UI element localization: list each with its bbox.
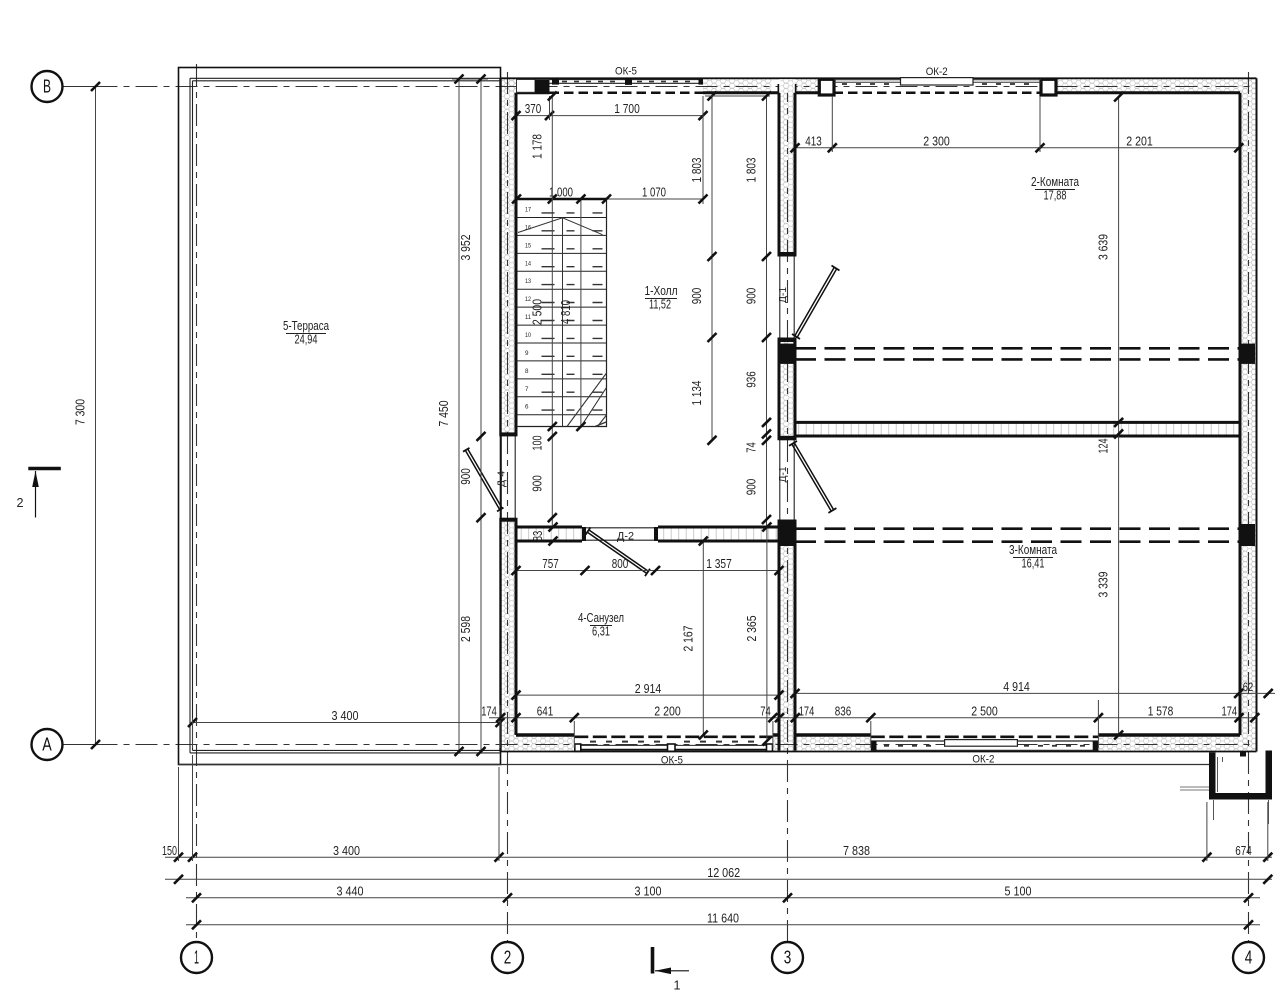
svg-text:Д-2: Д-2 <box>617 531 634 543</box>
svg-text:7: 7 <box>525 386 529 393</box>
svg-text:2: 2 <box>17 495 24 510</box>
svg-text:4 914: 4 914 <box>1003 679 1030 694</box>
svg-text:24,94: 24,94 <box>295 332 318 347</box>
svg-text:413: 413 <box>805 134 822 149</box>
svg-text:3 639: 3 639 <box>1096 234 1111 260</box>
svg-text:370: 370 <box>525 101 542 116</box>
svg-text:2: 2 <box>504 948 512 968</box>
svg-text:13: 13 <box>525 278 531 285</box>
svg-text:83: 83 <box>530 531 545 542</box>
svg-text:3 400: 3 400 <box>332 708 359 723</box>
svg-text:A: A <box>42 735 52 755</box>
svg-text:1 700: 1 700 <box>614 101 640 116</box>
svg-text:7 838: 7 838 <box>843 843 870 858</box>
svg-text:4 810: 4 810 <box>558 300 573 324</box>
svg-text:11 640: 11 640 <box>707 911 739 926</box>
svg-text:14: 14 <box>525 260 531 267</box>
svg-text:1: 1 <box>194 948 199 968</box>
svg-text:74: 74 <box>760 703 771 718</box>
svg-text:900: 900 <box>529 475 544 492</box>
svg-text:800: 800 <box>612 556 629 571</box>
svg-text:17,88: 17,88 <box>1044 188 1067 203</box>
svg-text:10: 10 <box>525 332 531 339</box>
svg-text:1 357: 1 357 <box>706 556 732 571</box>
svg-text:12 062: 12 062 <box>707 865 740 880</box>
svg-text:1: 1 <box>674 978 681 990</box>
svg-text:3 400: 3 400 <box>333 843 360 858</box>
svg-text:1 178: 1 178 <box>529 134 544 159</box>
svg-text:1 070: 1 070 <box>642 185 666 200</box>
svg-text:3 100: 3 100 <box>635 884 662 899</box>
svg-text:62: 62 <box>1243 680 1254 694</box>
svg-text:1 803: 1 803 <box>744 158 759 183</box>
svg-text:2 200: 2 200 <box>654 703 681 718</box>
svg-text:Д-1: Д-1 <box>777 466 789 482</box>
svg-text:1 578: 1 578 <box>1148 703 1174 718</box>
svg-text:2 365: 2 365 <box>744 616 759 642</box>
svg-text:100: 100 <box>529 436 544 451</box>
svg-text:900: 900 <box>689 288 704 305</box>
svg-text:5 100: 5 100 <box>1005 884 1032 899</box>
svg-text:Д-4: Д-4 <box>496 471 508 487</box>
svg-text:936: 936 <box>744 371 759 388</box>
svg-text:174: 174 <box>481 703 497 718</box>
svg-text:8: 8 <box>525 368 529 375</box>
svg-text:74: 74 <box>744 442 759 453</box>
svg-text:6: 6 <box>525 404 529 411</box>
svg-text:900: 900 <box>744 479 759 496</box>
svg-text:2 914: 2 914 <box>635 681 662 696</box>
svg-text:ОК-2: ОК-2 <box>926 66 948 78</box>
svg-text:124: 124 <box>1096 439 1111 454</box>
svg-text:757: 757 <box>542 556 559 571</box>
svg-text:11,52: 11,52 <box>649 297 671 312</box>
svg-text:174: 174 <box>799 703 815 718</box>
svg-text:B: B <box>43 77 51 97</box>
svg-text:3: 3 <box>784 948 792 968</box>
svg-text:641: 641 <box>537 703 554 718</box>
svg-text:2 201: 2 201 <box>1126 134 1153 149</box>
svg-text:3 339: 3 339 <box>1096 572 1111 598</box>
svg-text:2 500: 2 500 <box>971 703 998 718</box>
svg-text:7 450: 7 450 <box>436 401 451 427</box>
svg-text:1 803: 1 803 <box>689 158 704 183</box>
svg-text:ОК-5: ОК-5 <box>661 754 683 766</box>
svg-text:174: 174 <box>1222 703 1238 718</box>
svg-text:836: 836 <box>835 703 852 718</box>
svg-text:1 134: 1 134 <box>689 381 704 406</box>
svg-text:15: 15 <box>525 242 531 249</box>
svg-text:Д-1: Д-1 <box>777 287 789 303</box>
svg-text:2 167: 2 167 <box>680 626 695 652</box>
svg-text:7 300: 7 300 <box>73 399 88 425</box>
svg-text:4: 4 <box>1245 948 1253 968</box>
svg-text:17: 17 <box>525 207 531 214</box>
svg-text:3 440: 3 440 <box>337 884 364 899</box>
svg-text:ОК-2: ОК-2 <box>972 753 994 765</box>
svg-text:ОК-5: ОК-5 <box>615 66 637 78</box>
svg-text:2 500: 2 500 <box>529 299 544 325</box>
svg-text:900: 900 <box>744 288 759 305</box>
svg-text:6,31: 6,31 <box>592 624 610 639</box>
svg-text:2 300: 2 300 <box>923 134 950 149</box>
svg-text:3 952: 3 952 <box>458 235 473 261</box>
svg-text:900: 900 <box>458 468 473 485</box>
svg-text:2 598: 2 598 <box>458 616 473 642</box>
svg-text:150: 150 <box>162 843 177 858</box>
svg-text:16,41: 16,41 <box>1022 556 1045 571</box>
svg-text:674: 674 <box>1235 843 1252 858</box>
svg-text:9: 9 <box>525 350 529 357</box>
